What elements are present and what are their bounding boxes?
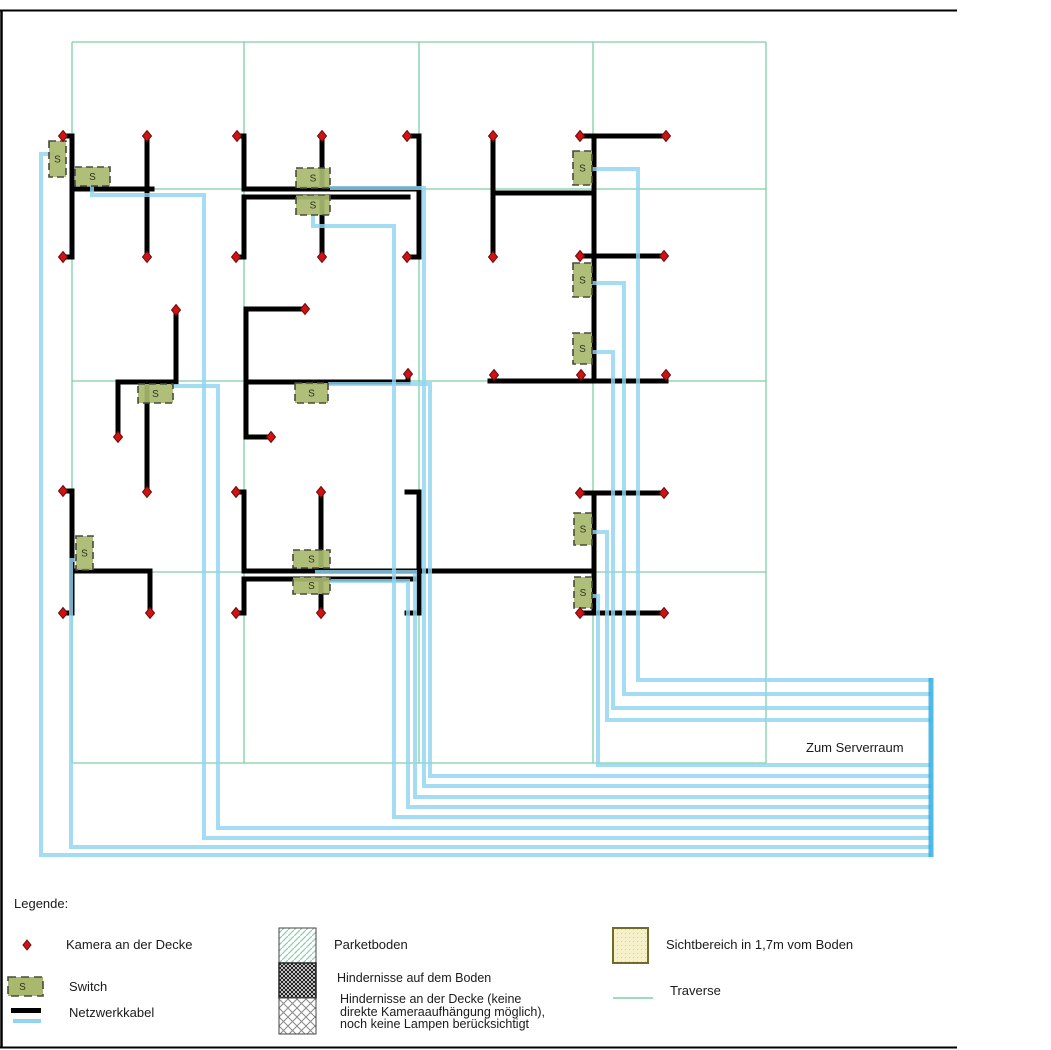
camera-icon xyxy=(143,252,152,263)
camera-icon xyxy=(660,608,669,619)
camera-icon xyxy=(143,131,152,142)
camera-icon xyxy=(59,486,68,497)
camera-icon xyxy=(232,487,241,498)
legend-parkett-swatch xyxy=(279,928,316,963)
camera-icon xyxy=(59,131,68,142)
camera-icon xyxy=(23,940,31,950)
switch: S xyxy=(49,141,66,177)
switch-label: S xyxy=(308,581,315,592)
switch: S xyxy=(293,577,330,594)
switch: S xyxy=(296,195,330,215)
camera-icon xyxy=(660,251,669,262)
network-cable xyxy=(236,197,244,257)
legend-label-hindernisse-decke-line3: noch keine Lampen berücksichtigt xyxy=(340,1018,545,1031)
camera-icon xyxy=(267,432,276,443)
legend-label-hindernisse-decke: Hindernisse an der Decke (keine direkte … xyxy=(340,993,545,1031)
legend-label-hindernisse-boden: Hindernisse auf dem Boden xyxy=(337,972,491,985)
camera-icon xyxy=(576,488,585,499)
switch-label: S xyxy=(310,174,317,185)
camera-icon xyxy=(301,304,310,315)
switch: S xyxy=(573,151,592,185)
camera-icon xyxy=(233,131,242,142)
legend-hindernisse-boden-swatch xyxy=(279,963,316,998)
switch-label: S xyxy=(89,172,96,183)
camera-icon xyxy=(576,131,585,142)
camera-icon xyxy=(114,432,123,443)
legend-hindernisse-decke-swatch xyxy=(279,998,316,1034)
switch-label: S xyxy=(580,588,587,599)
uplink-cable xyxy=(592,352,931,708)
switch-label: S xyxy=(310,201,317,212)
server-room-label: Zum Serverraum xyxy=(806,741,904,754)
switch: S xyxy=(574,577,592,608)
switch: S xyxy=(293,550,330,568)
network-cable xyxy=(237,136,244,189)
legend-title: Legende: xyxy=(14,897,68,910)
camera-icon xyxy=(660,488,669,499)
camera-icon xyxy=(146,608,155,619)
network-cable xyxy=(236,579,244,613)
switch-label: S xyxy=(54,155,61,166)
legend-label-hindernisse-decke-line1: Hindernisse an der Decke (keine xyxy=(340,993,545,1006)
camera-icon xyxy=(172,305,181,316)
switch-label: S xyxy=(580,525,587,536)
uplink-cable xyxy=(71,560,931,847)
uplink-cable xyxy=(592,283,931,694)
switch: S xyxy=(295,383,328,403)
legend-label-switch: Switch xyxy=(69,980,107,993)
camera-icon xyxy=(403,131,412,142)
camera-icon xyxy=(232,608,241,619)
uplink-cable xyxy=(173,386,931,828)
camera-icon xyxy=(143,487,152,498)
switch: S xyxy=(573,333,592,364)
network-cable xyxy=(236,492,244,571)
camera-icon xyxy=(404,369,413,380)
camera-icon xyxy=(576,251,585,262)
switch-label: S xyxy=(579,344,586,355)
camera-icon xyxy=(489,131,498,142)
legend-label-traverse: Traverse xyxy=(670,984,721,997)
legend-blue-cable-swatch xyxy=(13,1019,41,1023)
camera-icon xyxy=(318,252,327,263)
switch: S xyxy=(76,536,93,570)
camera-icon xyxy=(317,487,326,498)
camera-icon xyxy=(317,608,326,619)
switch: S xyxy=(573,263,592,297)
uplink-cable xyxy=(41,154,931,855)
camera-icon xyxy=(403,252,412,263)
switch-label: S xyxy=(308,389,315,400)
legend-black-cable-swatch xyxy=(11,1008,41,1013)
legend-label-kamera: Kamera an der Decke xyxy=(66,938,192,951)
legend-switch-letter: S xyxy=(19,982,26,993)
legend-label-sichtbereich: Sichtbereich in 1,7m vom Boden xyxy=(666,938,853,951)
switch-label: S xyxy=(579,276,586,287)
switch: S xyxy=(296,168,330,188)
floorplan-cabling-diagram: SSSSSSSSSSSSSS S Zum Serverraum Legende:… xyxy=(0,0,1051,1050)
uplink-cable xyxy=(592,532,931,720)
uplink-cable xyxy=(330,188,931,786)
camera-icon xyxy=(489,252,498,263)
switch-label: S xyxy=(81,549,88,560)
switch: S xyxy=(75,167,110,186)
diagram-canvas: SSSSSSSSSSSSSS S xyxy=(0,0,1051,1050)
legend-label-parkettboden: Parketboden xyxy=(334,938,408,951)
switch: S xyxy=(138,384,173,403)
switch-label: S xyxy=(579,164,586,175)
legend-sichtbereich-swatch xyxy=(613,928,648,963)
switch: S xyxy=(574,513,592,545)
camera-icon xyxy=(59,608,68,619)
camera-icon xyxy=(318,131,327,142)
camera-icon xyxy=(59,252,68,263)
uplink-cable xyxy=(592,169,931,680)
camera-icon xyxy=(576,608,585,619)
camera-icon xyxy=(662,131,671,142)
switch-label: S xyxy=(308,555,315,566)
switch-label: S xyxy=(152,389,159,400)
camera-icon xyxy=(232,252,241,263)
legend-label-netzwerkkabel: Netzwerkkabel xyxy=(69,1006,154,1019)
